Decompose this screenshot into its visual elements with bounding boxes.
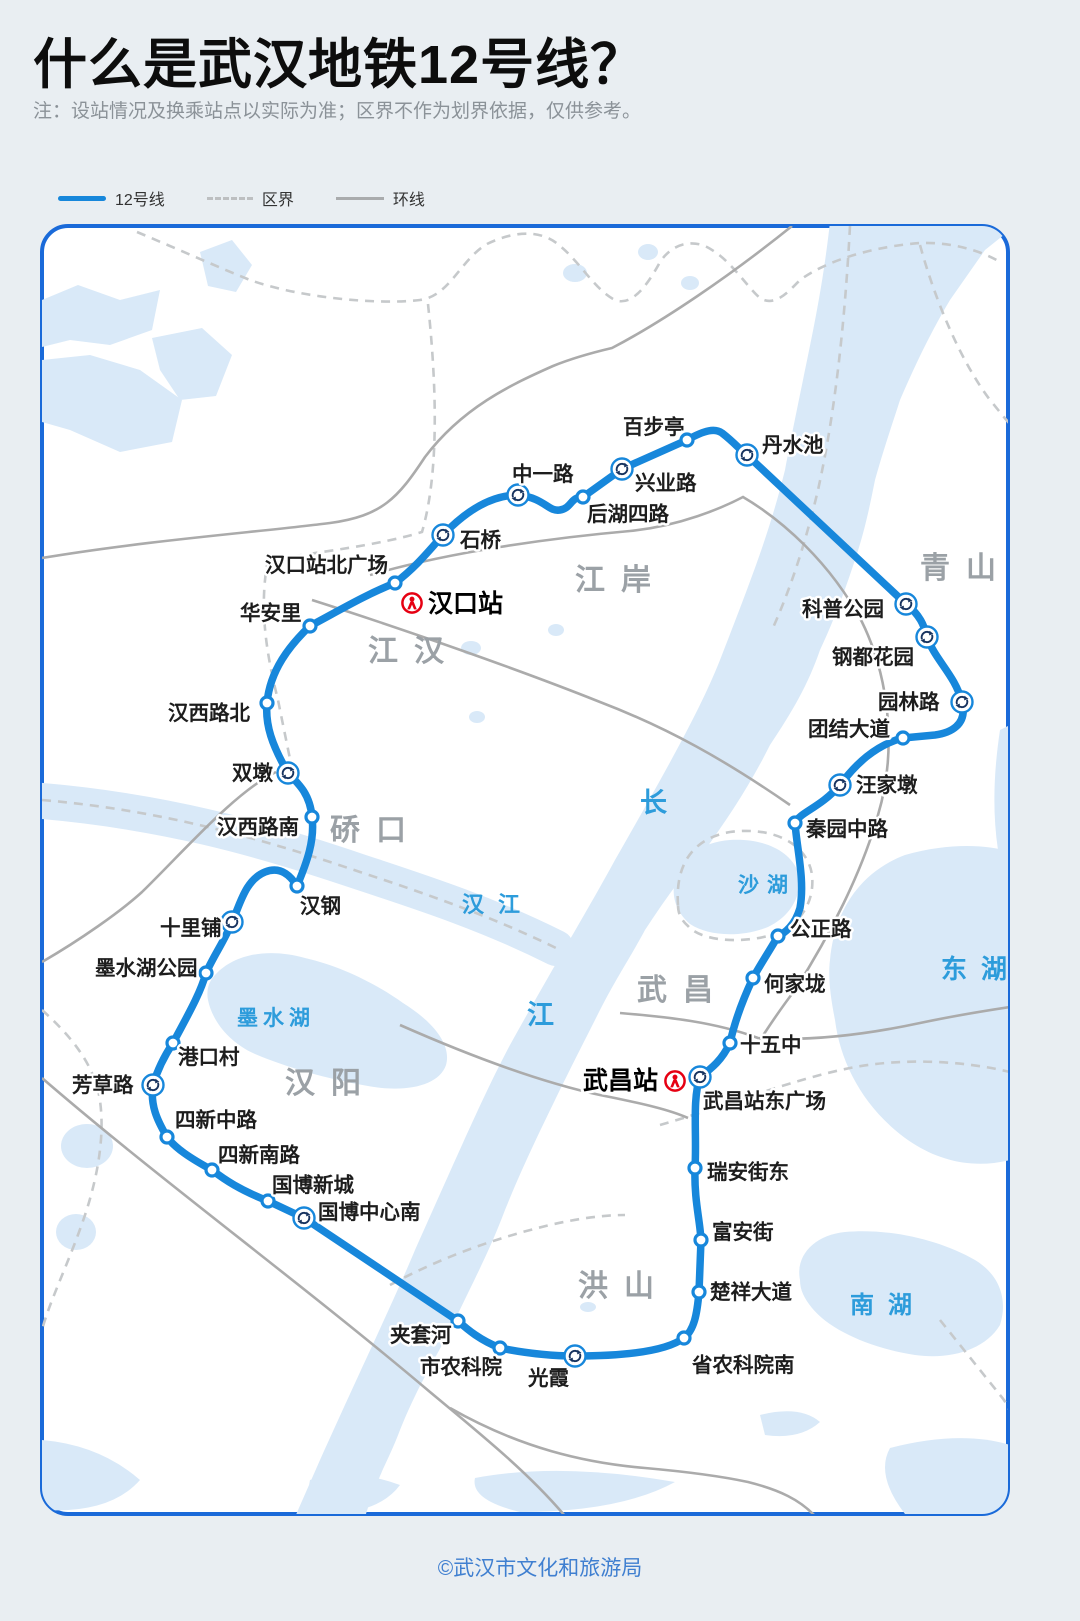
station-dot xyxy=(678,1332,690,1344)
station-label: 石桥 xyxy=(459,528,501,552)
station-dot xyxy=(695,1234,707,1246)
interchange-station-icon xyxy=(690,1067,711,1088)
station-label: 钢都花园 xyxy=(832,646,914,669)
water-label: 东湖 xyxy=(941,954,1010,984)
station-dot xyxy=(494,1342,506,1354)
interchange-station-icon xyxy=(612,459,633,480)
railway-station-label: 武昌站 xyxy=(583,1067,658,1095)
interchange-station-icon xyxy=(433,525,454,546)
legend-label-line12: 12号线 xyxy=(115,186,165,210)
station-label: 何家垅 xyxy=(764,972,826,996)
disclaimer-note: 注：设站情况及换乘站点以实际为准；区界不作为划界依据，仅供参考。 xyxy=(33,96,1033,123)
station-label: 富安街 xyxy=(712,1220,774,1244)
water-label: 南湖 xyxy=(850,1292,926,1319)
legend-label-ringroad: 环线 xyxy=(393,186,425,210)
map-container: 江岸江汉硚口汉阳武昌洪山青山 汉江长江墨水湖沙湖东湖南湖 汉口站北广场石桥中一路… xyxy=(40,222,1010,1517)
interchange-station-icon xyxy=(508,485,529,506)
interchange-station-icon xyxy=(830,775,851,796)
station-label: 园林路 xyxy=(878,690,940,714)
station-label: 汉西路北 xyxy=(168,701,250,725)
station-dot xyxy=(304,620,316,632)
pond-4 xyxy=(681,276,699,290)
pond-10 xyxy=(56,1214,96,1250)
legend-item-boundary: 区界 xyxy=(207,186,294,210)
metro-map: 江岸江汉硚口汉阳武昌洪山青山 汉江长江墨水湖沙湖东湖南湖 汉口站北广场石桥中一路… xyxy=(40,222,1010,1517)
station-label: 汉钢 xyxy=(300,895,341,918)
station-label: 汉口站北广场 xyxy=(265,553,388,577)
legend: 12号线 区界 环线 xyxy=(58,186,467,210)
railway-station-icon xyxy=(402,593,421,612)
district-label: 江岸 xyxy=(575,564,667,597)
ringroad-swatch-icon xyxy=(336,197,384,200)
interchange-station-icon xyxy=(737,445,758,466)
page-title: 什么是武汉地铁12号线？ xyxy=(33,20,1033,99)
station-dot xyxy=(291,880,303,892)
district-label: 江汉 xyxy=(368,635,460,668)
railway-station-icon xyxy=(665,1071,684,1090)
station-label: 市农科院 xyxy=(420,1355,502,1379)
station-label: 丹水池 xyxy=(762,434,824,457)
interchange-station-icon xyxy=(143,1075,164,1096)
station-dot xyxy=(747,972,759,984)
station-label: 四新南路 xyxy=(218,1143,300,1167)
station-label: 十里铺 xyxy=(160,916,222,940)
station-label: 华安里 xyxy=(240,601,302,625)
station-dot xyxy=(206,1164,218,1176)
station-label: 国博新城 xyxy=(272,1173,354,1197)
station-label: 后湖四路 xyxy=(587,502,669,526)
station-label: 瑞安街东 xyxy=(707,1160,789,1184)
water-label: 江 xyxy=(527,1000,554,1030)
station-label: 光霞 xyxy=(527,1366,569,1390)
legend-item-ringroad: 环线 xyxy=(336,186,425,210)
station-dot xyxy=(200,967,212,979)
station-label: 夹套河 xyxy=(390,1323,452,1347)
interchange-station-icon xyxy=(896,594,917,615)
district-label: 青山 xyxy=(920,552,1010,585)
station-label: 公正路 xyxy=(790,917,852,941)
station-label: 武昌站东广场 xyxy=(703,1089,826,1113)
interchange-station-icon xyxy=(278,763,299,784)
legend-item-line12: 12号线 xyxy=(58,186,165,210)
station-label: 楚祥大道 xyxy=(710,1280,792,1304)
district-label: 武昌 xyxy=(637,974,729,1007)
station-dot xyxy=(789,817,801,829)
station-label: 省农科院南 xyxy=(691,1353,795,1377)
line12-swatch-icon xyxy=(58,196,106,201)
station-dot xyxy=(577,491,589,503)
pond-2 xyxy=(563,264,587,282)
station-label: 兴业路 xyxy=(635,471,697,495)
station-dot xyxy=(689,1162,701,1174)
station-dot xyxy=(161,1131,173,1143)
station-label: 四新中路 xyxy=(175,1108,257,1132)
pond-7 xyxy=(548,624,564,636)
district-label: 洪山 xyxy=(578,1270,670,1303)
water-label: 汉江 xyxy=(462,892,534,917)
station-label: 双墩 xyxy=(232,761,273,785)
station-label: 中一路 xyxy=(512,462,574,486)
station-dot xyxy=(389,577,401,589)
water-label: 沙湖 xyxy=(738,874,796,897)
interchange-station-icon xyxy=(294,1208,315,1229)
district-label: 硚口 xyxy=(330,814,422,847)
boundary-swatch-icon xyxy=(207,197,253,200)
station-dot xyxy=(772,930,784,942)
footer-credit: ©武汉市文化和旅游局 xyxy=(0,1552,1080,1582)
district-label: 汉阳 xyxy=(285,1067,377,1100)
station-dot xyxy=(693,1286,705,1298)
station-dot xyxy=(306,811,318,823)
pond-bottom-4 xyxy=(885,1438,1010,1514)
water-label: 长 xyxy=(640,788,668,818)
station-label: 百步亭 xyxy=(623,415,685,439)
interchange-station-icon xyxy=(952,692,973,713)
station-label: 国博中心南 xyxy=(318,1200,421,1224)
station-dot xyxy=(897,732,909,744)
pond-6 xyxy=(469,711,485,723)
railway-station-label: 汉口站 xyxy=(428,590,503,618)
station-dot xyxy=(724,1037,736,1049)
pond-8 xyxy=(580,1302,596,1312)
interchange-station-icon xyxy=(222,912,243,933)
station-label: 团结大道 xyxy=(808,717,890,741)
station-label: 秦园中路 xyxy=(805,817,888,841)
station-label: 汪家墩 xyxy=(856,773,918,797)
water-label: 墨水湖 xyxy=(237,1007,315,1030)
pond-3 xyxy=(638,244,658,260)
station-label: 科普公园 xyxy=(802,597,884,621)
station-label: 芳草路 xyxy=(72,1073,134,1097)
station-dot xyxy=(261,697,273,709)
interchange-station-icon xyxy=(565,1346,586,1367)
legend-label-boundary: 区界 xyxy=(262,186,294,210)
station-label: 十五中 xyxy=(740,1033,802,1057)
station-label: 墨水湖公园 xyxy=(95,957,198,980)
station-label: 港口村 xyxy=(178,1045,240,1069)
interchange-station-icon xyxy=(917,627,938,648)
station-label: 汉西路南 xyxy=(217,815,299,839)
station-dot xyxy=(452,1315,464,1327)
